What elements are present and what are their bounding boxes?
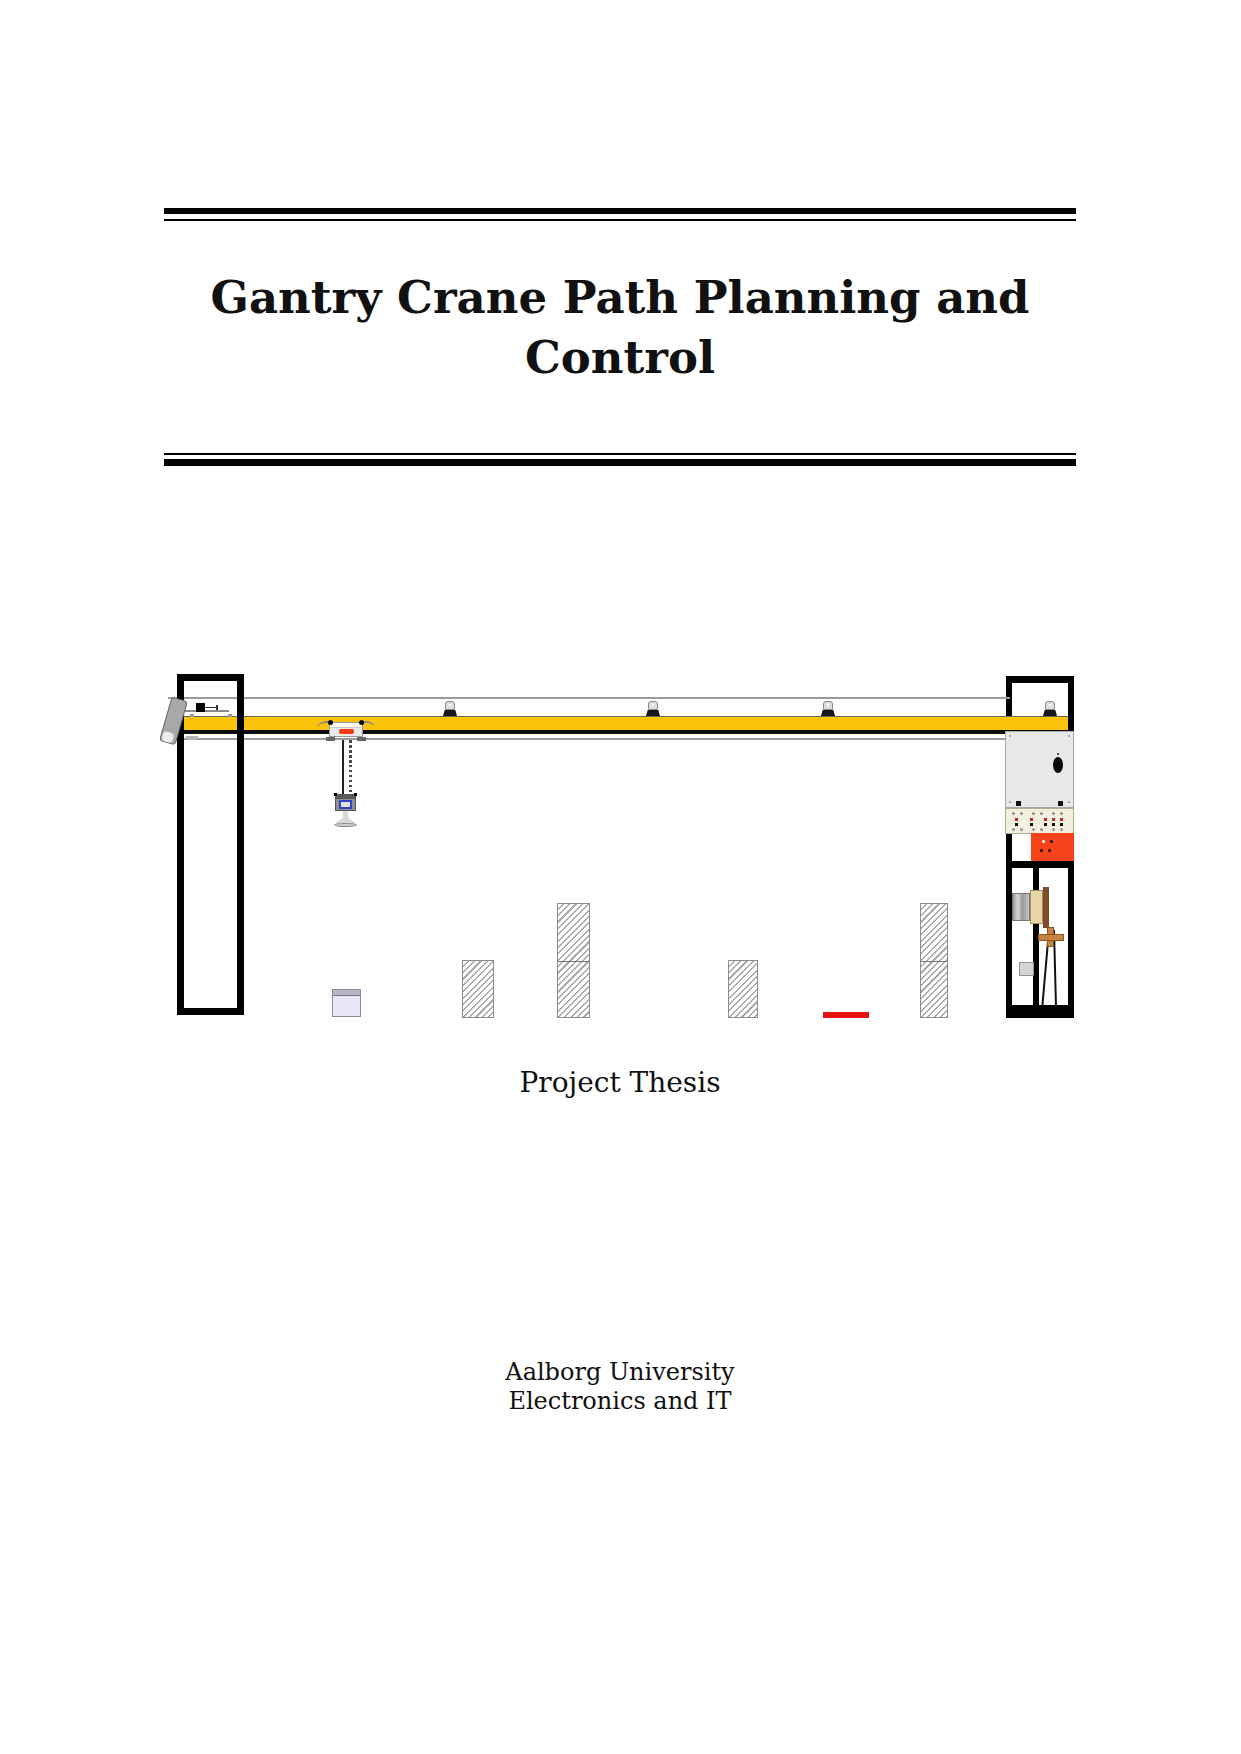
page-title: Gantry Crane Path Planning and Control — [164, 268, 1076, 388]
beacon-highlight — [652, 704, 654, 706]
hook-block-cap — [336, 795, 355, 799]
obstacle-divider — [921, 961, 947, 962]
cabinet-handle — [1053, 757, 1063, 773]
obstacle-divider — [558, 961, 589, 962]
top-double-rule — [164, 208, 1076, 221]
beacon-base — [821, 710, 835, 716]
terminal-dot — [1020, 812, 1023, 815]
cabinet-fastener — [1058, 801, 1063, 806]
power-box-dot-black — [1040, 849, 1043, 852]
hoist-rope — [342, 740, 344, 795]
terminal-dot — [1040, 828, 1043, 831]
beacon-highlight — [827, 704, 829, 706]
power-box-red — [1031, 833, 1074, 862]
institution-line-2: Electronics and IT — [164, 1387, 1076, 1416]
obstacle-hatched — [462, 960, 494, 1018]
limit-switch-fixture — [196, 703, 205, 712]
terminal-led-red — [1030, 818, 1033, 821]
gantry-crane-figure — [164, 672, 1076, 1018]
hook-block-window — [339, 800, 352, 809]
bottom-rule-thick — [164, 459, 1076, 466]
terminal-dot — [1032, 812, 1035, 815]
beacon-base — [443, 710, 457, 716]
terminal-led-red — [1044, 818, 1047, 821]
terminal-dot — [1052, 812, 1055, 815]
terminal-led-black — [1044, 823, 1047, 826]
trolley-wheel — [328, 720, 333, 725]
upper-rail-line — [168, 697, 1010, 699]
motor-brown-strip — [1043, 887, 1049, 928]
terminal-dot — [1052, 828, 1055, 831]
cabinet-screw — [1009, 801, 1011, 803]
beacon-base — [1043, 710, 1057, 716]
subtitle-text: Project Thesis — [519, 1066, 720, 1099]
terminal-dot — [1020, 828, 1023, 831]
terminal-strip-panel — [1005, 808, 1074, 834]
trolley-top-plate — [330, 723, 362, 728]
terminal-dot — [1032, 828, 1035, 831]
institution-block: Aalborg University Electronics and IT — [164, 1358, 1076, 1416]
trolley — [317, 718, 375, 742]
bridge-beam — [169, 716, 1068, 730]
bottom-double-rule — [164, 453, 1076, 466]
payload-box — [332, 989, 361, 1017]
hoist-chain — [349, 740, 352, 795]
bell-gripper-base — [334, 823, 357, 827]
trolley-red-stripe — [339, 729, 354, 734]
beacon-dome — [1045, 701, 1055, 710]
bridge-beam-bottom-band — [169, 730, 1068, 734]
terminal-dot — [1040, 812, 1043, 815]
power-box-dot-black — [1050, 840, 1053, 843]
subtitle: Project Thesis — [164, 1066, 1076, 1100]
axle-bar — [1038, 934, 1064, 941]
title-line-1: Gantry Crane Path Planning and — [164, 268, 1076, 328]
institution-line-1: Aalborg University — [164, 1358, 1076, 1387]
target-marker-red — [823, 1012, 869, 1018]
terminal-led-red — [1015, 818, 1018, 821]
obstacle-hatched — [728, 960, 758, 1018]
payload-box-lid — [333, 990, 360, 996]
beacon-highlight — [1049, 704, 1051, 706]
trolley-foot — [326, 737, 335, 741]
terminal-dot — [1060, 812, 1063, 815]
hoist-motor-cylinder — [1012, 893, 1030, 921]
terminal-led-red — [1052, 818, 1055, 821]
hook-block — [335, 794, 356, 811]
column-mid-bar — [1006, 861, 1074, 868]
trolley-wheel — [359, 720, 364, 725]
signal-beacon — [443, 701, 457, 717]
terminal-dot — [1012, 812, 1015, 815]
terminal-led-black — [1015, 823, 1018, 826]
terminal-led-red — [1060, 818, 1063, 821]
cabinet-screw — [1009, 735, 1011, 737]
electrical-cabinet — [1005, 731, 1074, 808]
cabinet-screw — [1068, 801, 1070, 803]
control-column-top-bar — [1006, 676, 1074, 683]
terminal-dot — [1060, 828, 1063, 831]
title-line-2: Control — [164, 328, 1076, 388]
signal-beacon — [821, 701, 835, 717]
thesis-title-page: Gantry Crane Path Planning and Control — [0, 0, 1241, 1754]
beacon-dome — [823, 701, 833, 710]
cabinet-fastener — [1016, 801, 1021, 806]
obstacle-hatched-tall — [920, 903, 948, 1018]
signal-beacon — [1043, 701, 1057, 717]
handle-pin — [1057, 753, 1059, 755]
beacon-dome — [648, 701, 658, 710]
sensor-box — [1019, 962, 1034, 976]
motor-mount-block — [1030, 890, 1043, 924]
lower-rail-line — [172, 738, 1008, 740]
beacon-base — [646, 710, 660, 716]
terminal-dot — [1012, 828, 1015, 831]
power-box-dot-white — [1042, 840, 1045, 843]
top-rule-thick — [164, 208, 1076, 214]
terminal-led-black — [1030, 823, 1033, 826]
bottom-rule-thin — [164, 453, 1076, 455]
left-support-tower — [177, 674, 244, 1015]
obstacle-hatched-tall — [557, 903, 590, 1018]
fixture-end-tick — [216, 705, 218, 710]
top-rule-thin — [164, 219, 1076, 221]
block-pin — [334, 793, 337, 796]
cabinet-screw — [1068, 735, 1070, 737]
terminal-led-black — [1060, 823, 1063, 826]
power-box-dot-black — [1048, 849, 1051, 852]
signal-beacon — [646, 701, 660, 717]
trolley-foot — [357, 737, 366, 741]
block-pin — [354, 793, 357, 796]
beacon-highlight — [449, 704, 451, 706]
terminal-led-black — [1052, 823, 1055, 826]
bumper-cap — [161, 731, 174, 744]
beacon-dome — [445, 701, 455, 710]
control-column-bottom-bar — [1006, 1005, 1074, 1018]
